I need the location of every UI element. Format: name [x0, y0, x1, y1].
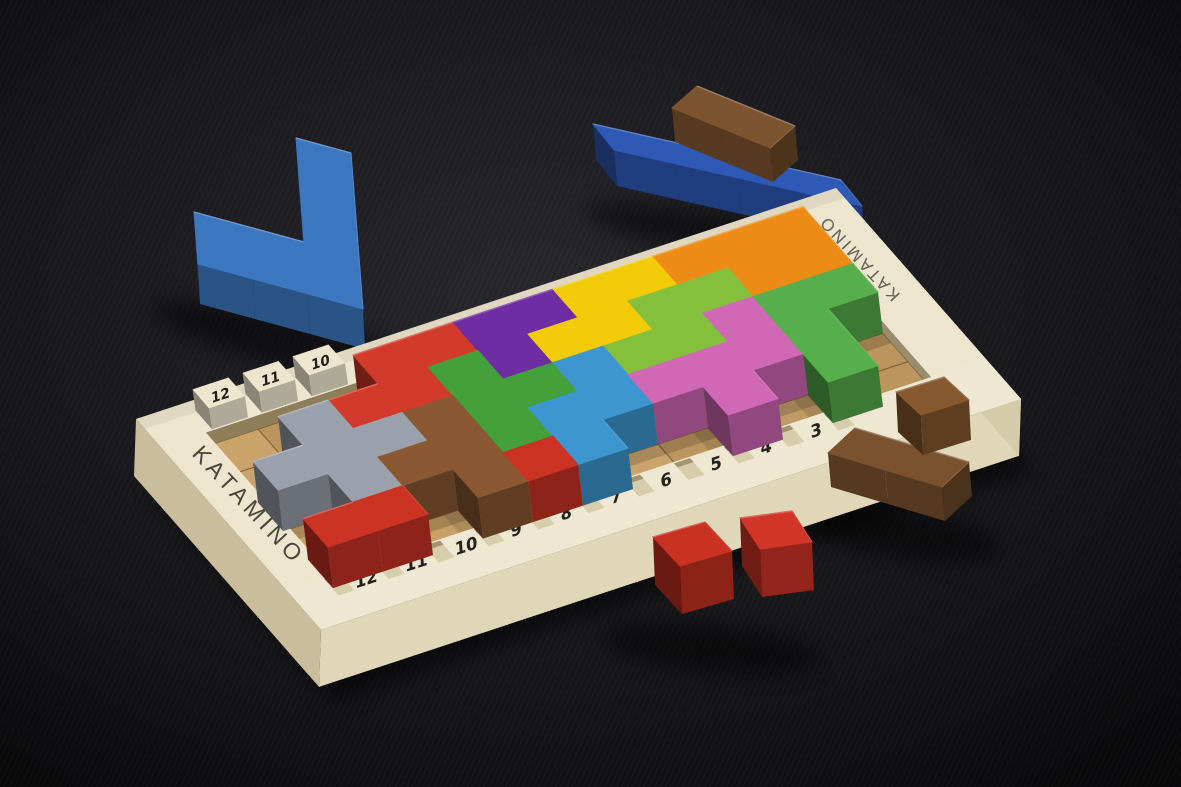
- katamino-photo: 1211101211109876543KATAMINOKATAMINO: [0, 0, 1181, 787]
- near-rail-number: 6: [660, 469, 673, 493]
- near-rail-number: 5: [710, 452, 723, 476]
- scene: 1211101211109876543KATAMINOKATAMINO: [0, 0, 1181, 787]
- near-rail-number: 3: [810, 419, 823, 443]
